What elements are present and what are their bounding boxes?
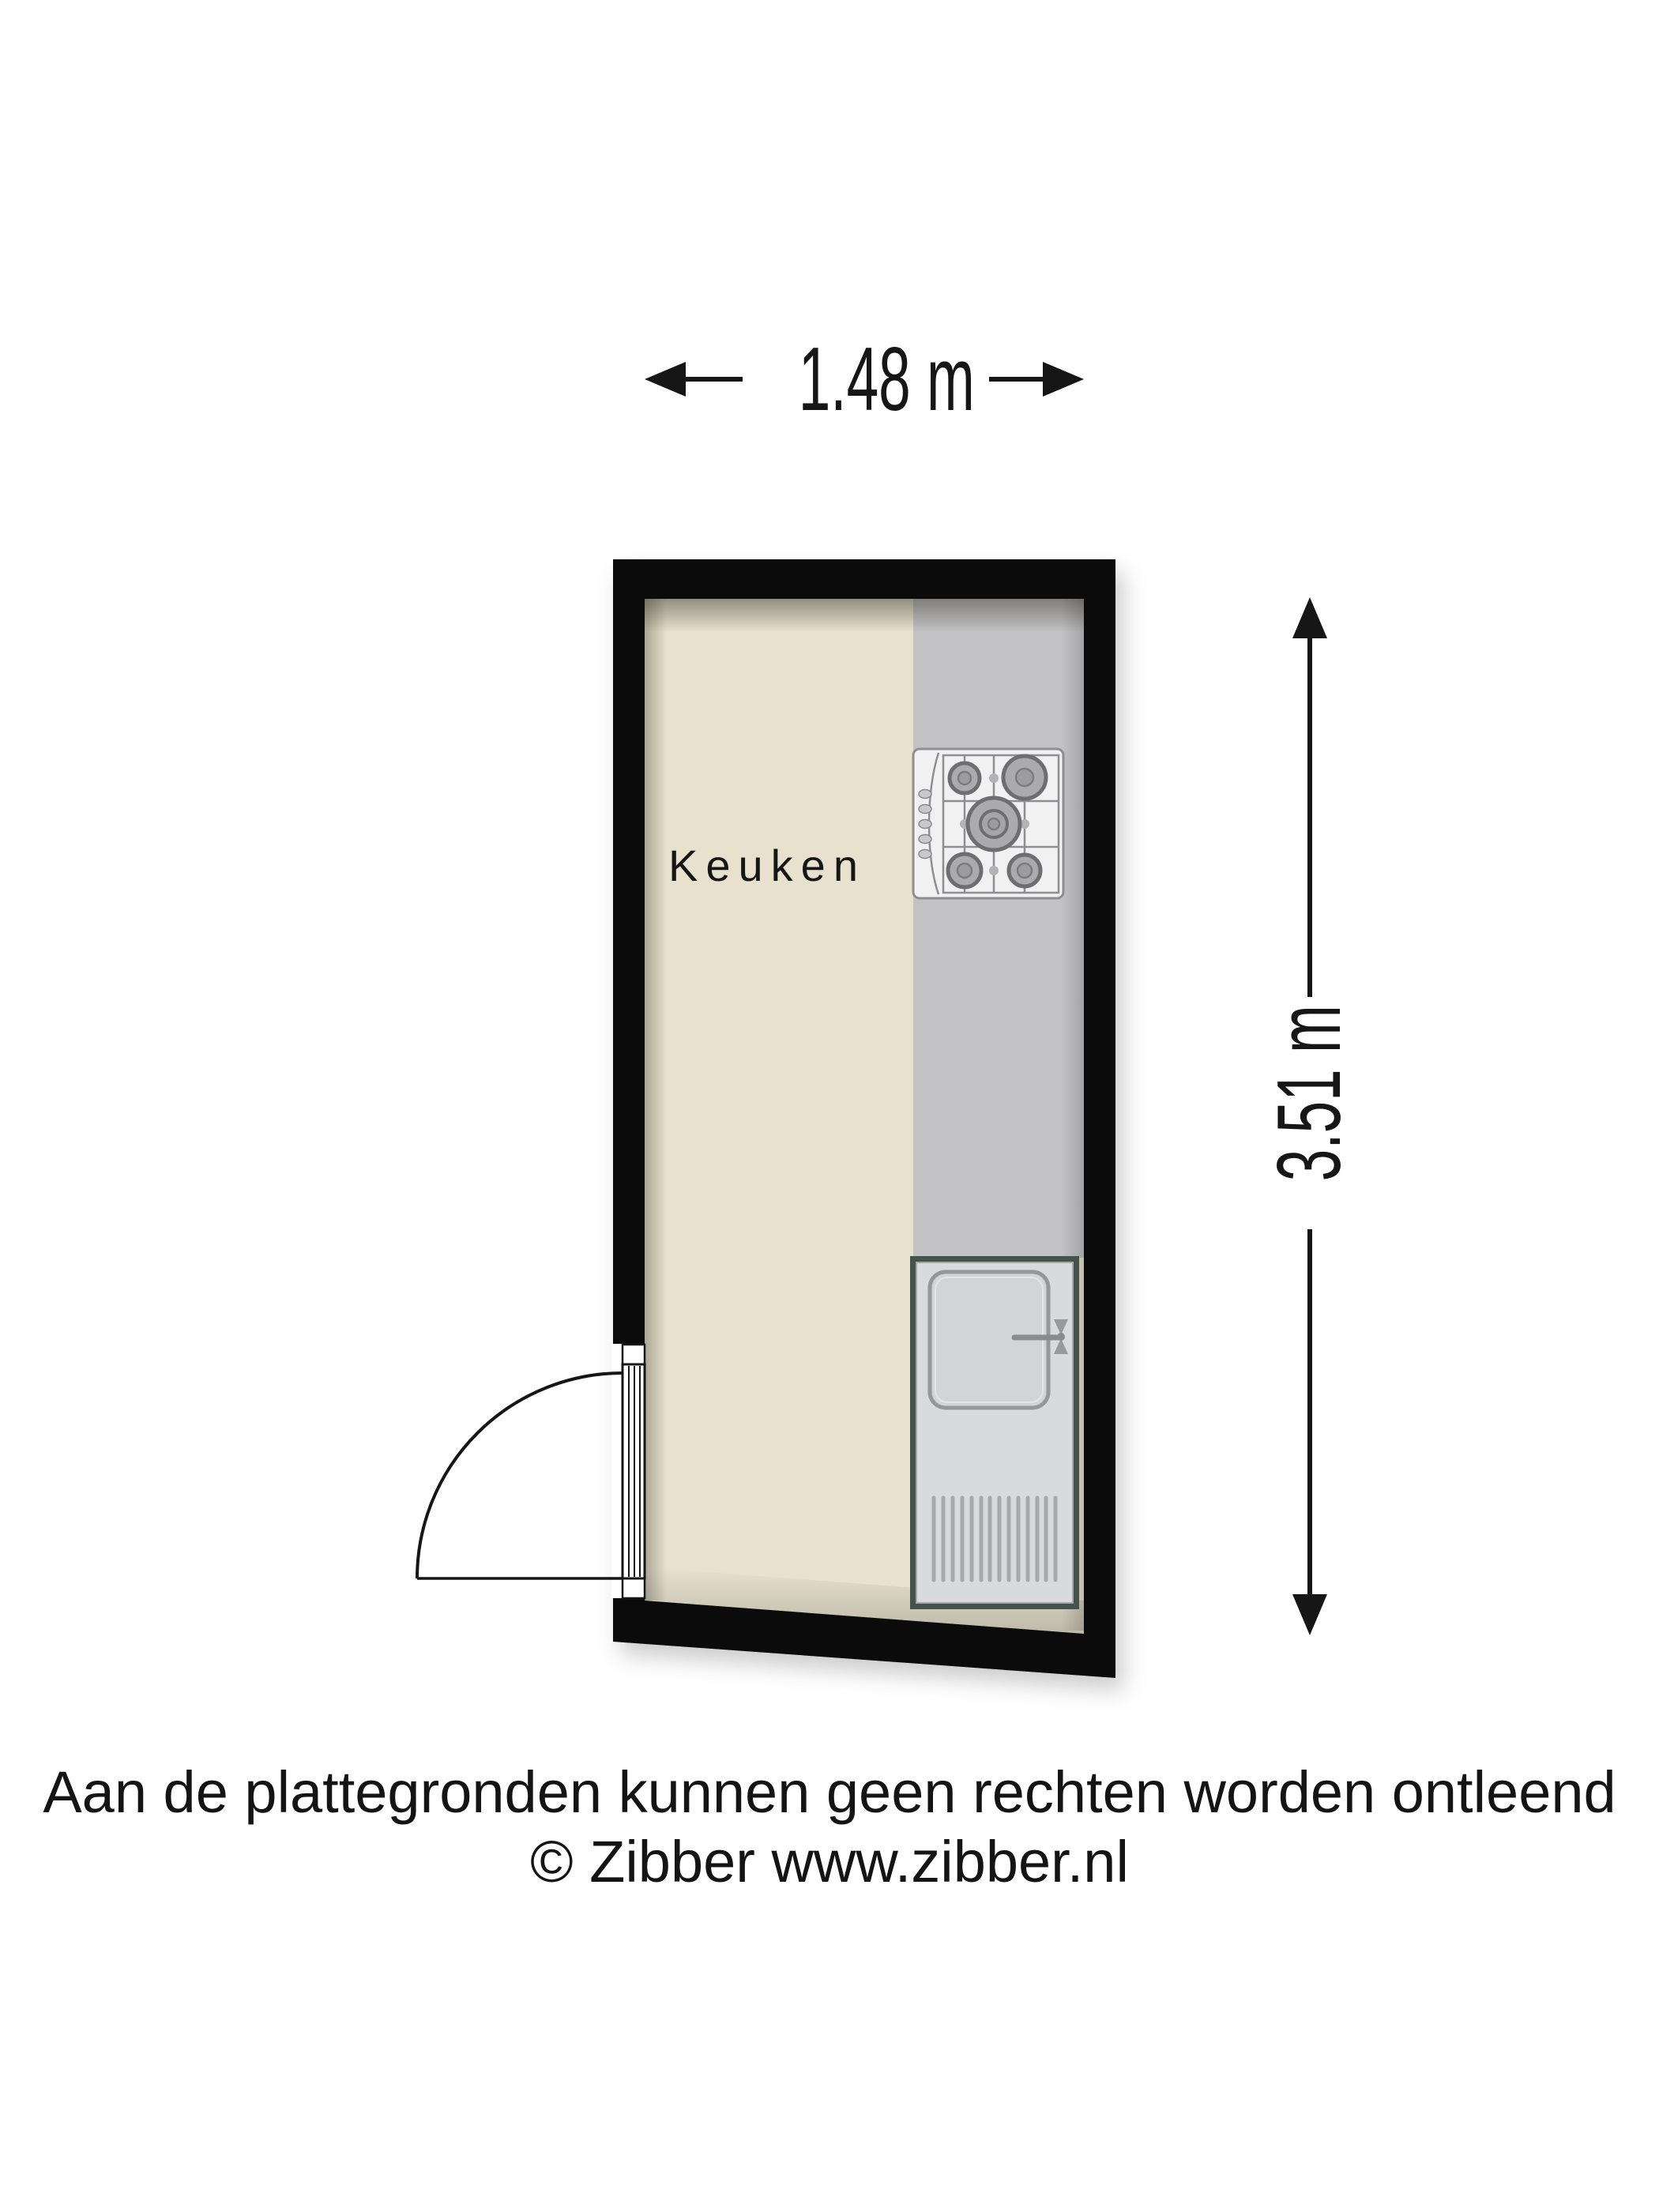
gas-hob-icon <box>913 749 1063 898</box>
disclaimer-line-2: © Zibber www.zibber.nl <box>0 1826 1659 1898</box>
kitchen-room <box>417 559 1115 1678</box>
height-dimension-label: 3.51 m <box>1262 994 1357 1231</box>
burner-bottom-left <box>948 854 981 887</box>
door-post-top <box>623 1345 645 1364</box>
width-dimension-value: 1.48 m <box>799 333 975 427</box>
burner-top-right <box>1003 756 1046 799</box>
burner-center <box>968 798 1020 850</box>
shading-left <box>645 599 667 1601</box>
room-label: Keuken <box>625 839 909 893</box>
countertop <box>913 599 1084 1258</box>
door-swing-arc <box>417 1373 623 1578</box>
burner-bottom-right <box>1009 855 1040 886</box>
door-swing-icon <box>417 1344 645 1598</box>
burner-top-left <box>950 763 980 793</box>
width-dimension-label: 1.48 m <box>749 333 986 427</box>
disclaimer-line-1: Aan de plattegronden kunnen geen rechten… <box>0 1757 1659 1828</box>
shading-top <box>645 599 1084 632</box>
kitchen-sink-icon <box>910 1256 1079 1609</box>
height-dimension-value: 3.51 m <box>1262 1005 1357 1181</box>
door-post-bottom <box>623 1578 645 1598</box>
floor-plan-page: { "title": "Keuken plattegrond", "floor_… <box>0 0 1659 2212</box>
